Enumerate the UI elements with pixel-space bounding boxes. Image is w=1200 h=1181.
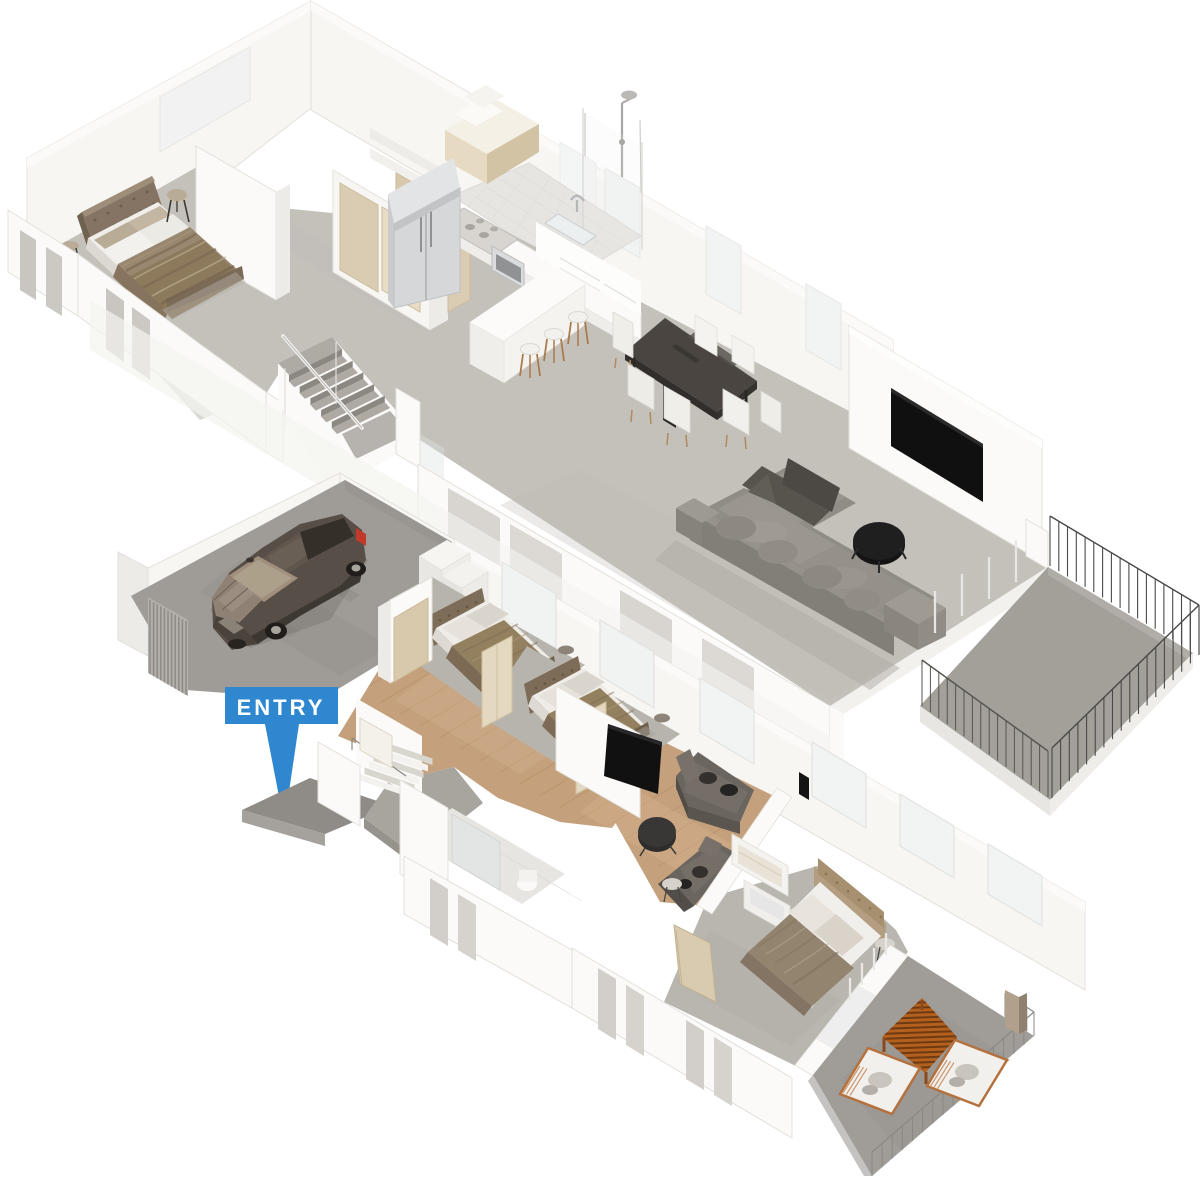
svg-text:ENTRY: ENTRY [237,695,326,720]
